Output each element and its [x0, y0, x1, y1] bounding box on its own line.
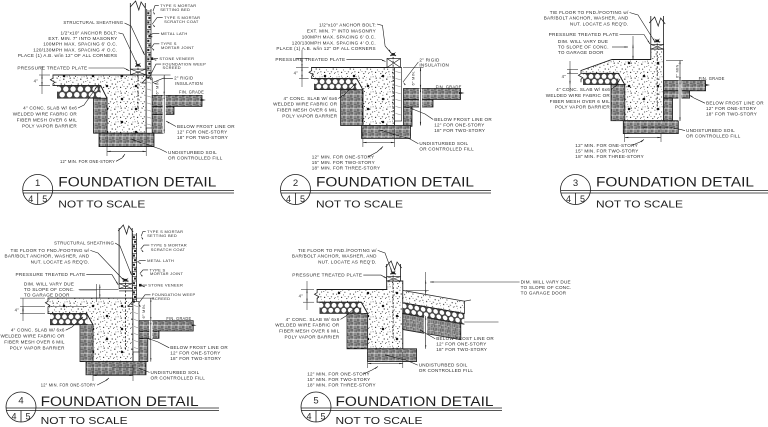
svg-text:5: 5 — [42, 194, 47, 204]
svg-text:3: 3 — [573, 178, 578, 189]
svg-text:18" MIN. FOR THREE-STORY: 18" MIN. FOR THREE-STORY — [312, 165, 381, 170]
svg-text:2: 2 — [293, 178, 298, 189]
svg-text:TO SLOPE OF CONC.: TO SLOPE OF CONC. — [521, 285, 572, 290]
svg-text:FIBER MESH OVER 6 MIL: FIBER MESH OVER 6 MIL — [550, 99, 611, 104]
svg-text:4: 4 — [566, 194, 571, 204]
svg-text:FOUNDATION DETAIL: FOUNDATION DETAIL — [316, 175, 475, 190]
svg-text:UNDISTURBED SOIL: UNDISTURBED SOIL — [168, 150, 217, 155]
svg-text:15" MIN. FOR TWO-STORY: 15" MIN. FOR TWO-STORY — [575, 149, 638, 154]
svg-text:FIN. GRADE: FIN. GRADE — [179, 90, 204, 95]
svg-text:4: 4 — [28, 194, 33, 204]
svg-text:4" CONC. SLAB W/ 6x6: 4" CONC. SLAB W/ 6x6 — [23, 106, 77, 111]
svg-text:120/130MPH MAX. SPACING 4' O.C: 120/130MPH MAX. SPACING 4' O.C. — [33, 47, 117, 52]
svg-text:FIBER MESH OVER 6 MIL: FIBER MESH OVER 6 MIL — [17, 117, 78, 122]
svg-text:TO GARAGE DOOR: TO GARAGE DOOR — [521, 290, 567, 295]
svg-text:4": 4" — [562, 74, 567, 79]
svg-text:4" CONC. SLAB W/ 6x6: 4" CONC. SLAB W/ 6x6 — [286, 317, 340, 322]
svg-text:TIE FLOOR TO FND./FOOTING w/: TIE FLOOR TO FND./FOOTING w/ — [298, 248, 377, 253]
svg-text:POLY VAPOR BARRIER: POLY VAPOR BARRIER — [282, 114, 337, 119]
svg-text:12" FOR ONE-STORY: 12" FOR ONE-STORY — [170, 351, 220, 356]
svg-text:METAL LATH: METAL LATH — [161, 31, 188, 36]
svg-text:SCRATCH COAT: SCRATCH COAT — [164, 19, 199, 24]
svg-text:STRUCTURAL SHEATHING: STRUCTURAL SHEATHING — [54, 240, 114, 245]
svg-text:STONE VENEER: STONE VENEER — [148, 283, 183, 288]
svg-text:5: 5 — [320, 412, 325, 422]
svg-text:FIN. GRADE: FIN. GRADE — [699, 76, 725, 81]
svg-text:WELDED WIRE FABRIC OR: WELDED WIRE FABRIC OR — [273, 102, 338, 107]
svg-text:UNDISTURBED SOIL: UNDISTURBED SOIL — [151, 370, 200, 375]
svg-text:FOUNDATION DETAIL: FOUNDATION DETAIL — [58, 175, 217, 190]
svg-text:STONE VENEER: STONE VENEER — [159, 56, 194, 61]
svg-text:WELDED WIRE FABRIC OR: WELDED WIRE FABRIC OR — [13, 112, 78, 117]
svg-text:12" FOR ONE-STORY: 12" FOR ONE-STORY — [177, 129, 227, 134]
svg-text:12" FOR ONE-STORY: 12" FOR ONE-STORY — [436, 342, 486, 347]
svg-text:12" FOR ONE-STORY: 12" FOR ONE-STORY — [706, 106, 756, 111]
svg-text:4" CONC. SLAB W/ 6x6: 4" CONC. SLAB W/ 6x6 — [556, 87, 610, 92]
svg-text:18" MIN. FOR THREE-STORY: 18" MIN. FOR THREE-STORY — [575, 154, 644, 159]
svg-text:TO SLOPE OF CONC.: TO SLOPE OF CONC. — [558, 45, 609, 50]
svg-text:NOT TO SCALE: NOT TO SCALE — [58, 199, 145, 211]
svg-text:4: 4 — [306, 412, 311, 422]
svg-text:18" FOR TWO-STORY: 18" FOR TWO-STORY — [436, 347, 487, 352]
svg-text:NOT TO SCALE: NOT TO SCALE — [316, 199, 403, 211]
svg-text:WELDED WIRE FABRIC OR: WELDED WIRE FABRIC OR — [546, 93, 611, 98]
svg-text:EXT. MIN. 7" INTO MASONRY: EXT. MIN. 7" INTO MASONRY — [307, 29, 376, 34]
svg-text:DIM. WILL VARY DUE: DIM. WILL VARY DUE — [558, 39, 608, 44]
svg-text:4": 4" — [34, 79, 39, 84]
svg-text:FIBER MESH OVER 6 MIL: FIBER MESH OVER 6 MIL — [279, 329, 340, 334]
svg-text:NUT. LOCATE AS REQ'D.: NUT. LOCATE AS REQ'D. — [31, 260, 90, 265]
svg-text:18" FOR TWO-STORY: 18" FOR TWO-STORY — [177, 135, 228, 140]
svg-text:5: 5 — [25, 412, 30, 422]
svg-text:SCREED: SCREED — [152, 296, 170, 301]
svg-text:FIBER MESH OVER 6 MIL: FIBER MESH OVER 6 MIL — [277, 108, 338, 113]
svg-text:4: 4 — [18, 396, 23, 407]
svg-text:SETTING BED: SETTING BED — [160, 7, 190, 12]
svg-text:MORTAR JOINT: MORTAR JOINT — [161, 45, 194, 50]
svg-text:PRESSURE TREATED PLATE: PRESSURE TREATED PLATE — [549, 32, 619, 37]
svg-text:SETTING BED: SETTING BED — [147, 233, 177, 238]
svg-text:NUT. LOCATE AS REQ'D.: NUT. LOCATE AS REQ'D. — [318, 260, 377, 265]
svg-text:OR CONTROLLED FILL: OR CONTROLLED FILL — [168, 155, 223, 160]
svg-text:4: 4 — [286, 194, 291, 204]
svg-text:FOUNDATION DETAIL: FOUNDATION DETAIL — [596, 175, 755, 190]
svg-text:DIM. WILL VARY DUE: DIM. WILL VARY DUE — [521, 279, 571, 284]
svg-text:18" FOR TWO-STORY: 18" FOR TWO-STORY — [706, 112, 757, 117]
svg-text:FOUNDATION DETAIL: FOUNDATION DETAIL — [336, 394, 495, 409]
svg-text:18" MIN. FOR THREE-STORY: 18" MIN. FOR THREE-STORY — [307, 383, 376, 388]
svg-text:BELOW FROST LINE OR: BELOW FROST LINE OR — [177, 124, 235, 129]
svg-text:5: 5 — [580, 194, 585, 204]
svg-text:6" MIN.: 6" MIN. — [141, 304, 146, 319]
svg-text:120/130MPH MAX. SPACING 4' O.C: 120/130MPH MAX. SPACING 4' O.C. — [292, 40, 376, 45]
svg-text:UNDISTURBED SOIL: UNDISTURBED SOIL — [686, 128, 735, 133]
svg-text:12" FOR ONE-STORY: 12" FOR ONE-STORY — [434, 122, 484, 127]
svg-text:12" MIN. FOR ONE-STORY: 12" MIN. FOR ONE-STORY — [307, 372, 370, 377]
svg-text:POLY VAPOR BARRIER: POLY VAPOR BARRIER — [10, 345, 65, 350]
svg-text:2" RIGID: 2" RIGID — [174, 76, 193, 81]
svg-text:BAR/BOLT ANCHOR, WASHER, AND: BAR/BOLT ANCHOR, WASHER, AND — [292, 254, 377, 259]
svg-text:OR CONTROLLED FILL: OR CONTROLLED FILL — [419, 368, 474, 373]
svg-text:OR CONTROLLED FILL: OR CONTROLLED FILL — [151, 375, 206, 380]
svg-text:4" CONC. SLAB W/ 6x6: 4" CONC. SLAB W/ 6x6 — [283, 96, 337, 101]
svg-text:4: 4 — [11, 412, 16, 422]
svg-text:FIN. GRADE: FIN. GRADE — [166, 316, 191, 321]
svg-text:NOT TO SCALE: NOT TO SCALE — [41, 415, 128, 427]
svg-text:12" MIN. FOR ONE-STORY: 12" MIN. FOR ONE-STORY — [312, 154, 375, 159]
svg-text:FIBER MESH OVER 6 MIL: FIBER MESH OVER 6 MIL — [4, 339, 65, 344]
svg-text:PLACE (1) A.B. w/in 12" OF ALL: PLACE (1) A.B. w/in 12" OF ALL CORNERS — [18, 53, 118, 58]
svg-text:12" MIN. FOR ONE-STORY: 12" MIN. FOR ONE-STORY — [41, 383, 96, 388]
svg-text:12" MIN. FOR ONE-STORY: 12" MIN. FOR ONE-STORY — [60, 159, 115, 164]
svg-text:15" MIN. FOR TWO-STORY: 15" MIN. FOR TWO-STORY — [307, 377, 370, 382]
svg-text:TIE FLOOR TO FND./FOOTING w/: TIE FLOOR TO FND./FOOTING w/ — [10, 248, 89, 253]
svg-text:TO GARAGE DOOR: TO GARAGE DOOR — [558, 50, 604, 55]
svg-text:1/2"x10" ANCHOR BOLT:: 1/2"x10" ANCHOR BOLT: — [60, 30, 117, 35]
svg-text:12" MIN. FOR ONE-STORY: 12" MIN. FOR ONE-STORY — [575, 143, 638, 148]
svg-text:TIE FLOOR TO FND./FOOTING w/: TIE FLOOR TO FND./FOOTING w/ — [550, 10, 629, 15]
svg-text:5: 5 — [313, 396, 318, 407]
svg-text:BAR/BOLT ANCHOR, WASHER, AND: BAR/BOLT ANCHOR, WASHER, AND — [544, 16, 629, 21]
svg-text:METAL LATH: METAL LATH — [147, 258, 174, 263]
svg-text:MORTAR JOINT: MORTAR JOINT — [150, 271, 183, 276]
svg-text:PRESSURE TREATED PLATE: PRESSURE TREATED PLATE — [17, 66, 87, 71]
svg-text:OR CONTROLLED FILL: OR CONTROLLED FILL — [419, 147, 474, 152]
svg-text:15" MIN. FOR TWO-STORY: 15" MIN. FOR TWO-STORY — [312, 160, 375, 165]
svg-text:NUT. LOCATE AS REQ'D.: NUT. LOCATE AS REQ'D. — [570, 22, 629, 27]
svg-text:1/2"x10" ANCHOR BOLT:: 1/2"x10" ANCHOR BOLT: — [319, 23, 376, 28]
svg-text:BELOW FROST LINE OR: BELOW FROST LINE OR — [706, 101, 764, 106]
svg-text:TO GARAGE DOOR: TO GARAGE DOOR — [24, 292, 70, 297]
svg-text:PRESSURE TREATED PLATE: PRESSURE TREATED PLATE — [292, 273, 362, 278]
svg-text:100MPH MAX. SPACING 6' O.C.: 100MPH MAX. SPACING 6' O.C. — [302, 34, 376, 39]
svg-text:BAR/BOLT ANCHOR, WASHER, AND: BAR/BOLT ANCHOR, WASHER, AND — [5, 254, 90, 259]
svg-text:SCREED: SCREED — [163, 65, 181, 70]
svg-text:POLY VAPOR BARRIER: POLY VAPOR BARRIER — [555, 105, 610, 110]
svg-text:BELOW FROST LINE OR: BELOW FROST LINE OR — [170, 345, 228, 350]
svg-text:100MPH MAX. SPACING 6' O.C.: 100MPH MAX. SPACING 6' O.C. — [43, 42, 117, 47]
svg-text:BELOW FROST LINE OR: BELOW FROST LINE OR — [434, 117, 492, 122]
svg-text:NOT TO SCALE: NOT TO SCALE — [596, 199, 683, 211]
svg-text:EXT. MIN. 7" INTO MASONRY: EXT. MIN. 7" INTO MASONRY — [48, 36, 117, 41]
svg-text:2" RIGID: 2" RIGID — [419, 57, 440, 62]
svg-text:BELOW FROST LINE OR: BELOW FROST LINE OR — [436, 336, 494, 341]
svg-text:4": 4" — [15, 308, 20, 313]
svg-text:FIN. GRADE: FIN. GRADE — [436, 84, 462, 89]
svg-text:OR CONTROLLED FILL: OR CONTROLLED FILL — [686, 134, 741, 139]
svg-text:UNDISTURBED SOIL: UNDISTURBED SOIL — [419, 141, 468, 146]
svg-text:FOUNDATION DETAIL: FOUNDATION DETAIL — [41, 394, 200, 409]
svg-text:WELDED WIRE FABRIC OR: WELDED WIRE FABRIC OR — [0, 334, 65, 339]
svg-text:6" MIN.: 6" MIN. — [411, 71, 416, 86]
svg-text:1: 1 — [35, 178, 40, 189]
svg-text:4": 4" — [294, 71, 299, 76]
svg-text:WELDED WIRE FABRIC OR: WELDED WIRE FABRIC OR — [275, 323, 340, 328]
svg-text:4": 4" — [299, 294, 304, 299]
svg-text:INSULATION: INSULATION — [175, 81, 203, 86]
svg-text:INSULATION: INSULATION — [419, 63, 449, 68]
svg-text:DIM. WILL VARY DUE: DIM. WILL VARY DUE — [24, 281, 74, 286]
svg-text:18" FOR TWO-STORY: 18" FOR TWO-STORY — [434, 128, 485, 133]
svg-text:NOT TO SCALE: NOT TO SCALE — [336, 415, 423, 427]
svg-text:PRESSURE TREATED PLATE: PRESSURE TREATED PLATE — [16, 272, 86, 277]
svg-text:PRESSURE TREATED PLATE: PRESSURE TREATED PLATE — [275, 57, 345, 62]
svg-text:18" FOR TWO-STORY: 18" FOR TWO-STORY — [170, 356, 221, 361]
svg-text:6" MIN.: 6" MIN. — [675, 63, 680, 78]
svg-text:POLY VAPOR BARRIER: POLY VAPOR BARRIER — [284, 335, 339, 340]
svg-text:4" CONC. SLAB W/ 6x6: 4" CONC. SLAB W/ 6x6 — [11, 328, 65, 333]
svg-text:SCRATCH COAT: SCRATCH COAT — [151, 247, 186, 252]
svg-text:PLACE (1) A.B. w/in 12" OF ALL: PLACE (1) A.B. w/in 12" OF ALL CORNERS — [276, 46, 376, 51]
svg-text:5: 5 — [300, 194, 305, 204]
svg-text:POLY VAPOR BARRIER: POLY VAPOR BARRIER — [22, 123, 77, 128]
svg-text:UNDISTURBED SOIL: UNDISTURBED SOIL — [419, 363, 468, 368]
svg-text:TO SLOPE OF CONC.: TO SLOPE OF CONC. — [24, 287, 75, 292]
svg-text:STRUCTURAL SHEATHING: STRUCTURAL SHEATHING — [63, 20, 123, 25]
